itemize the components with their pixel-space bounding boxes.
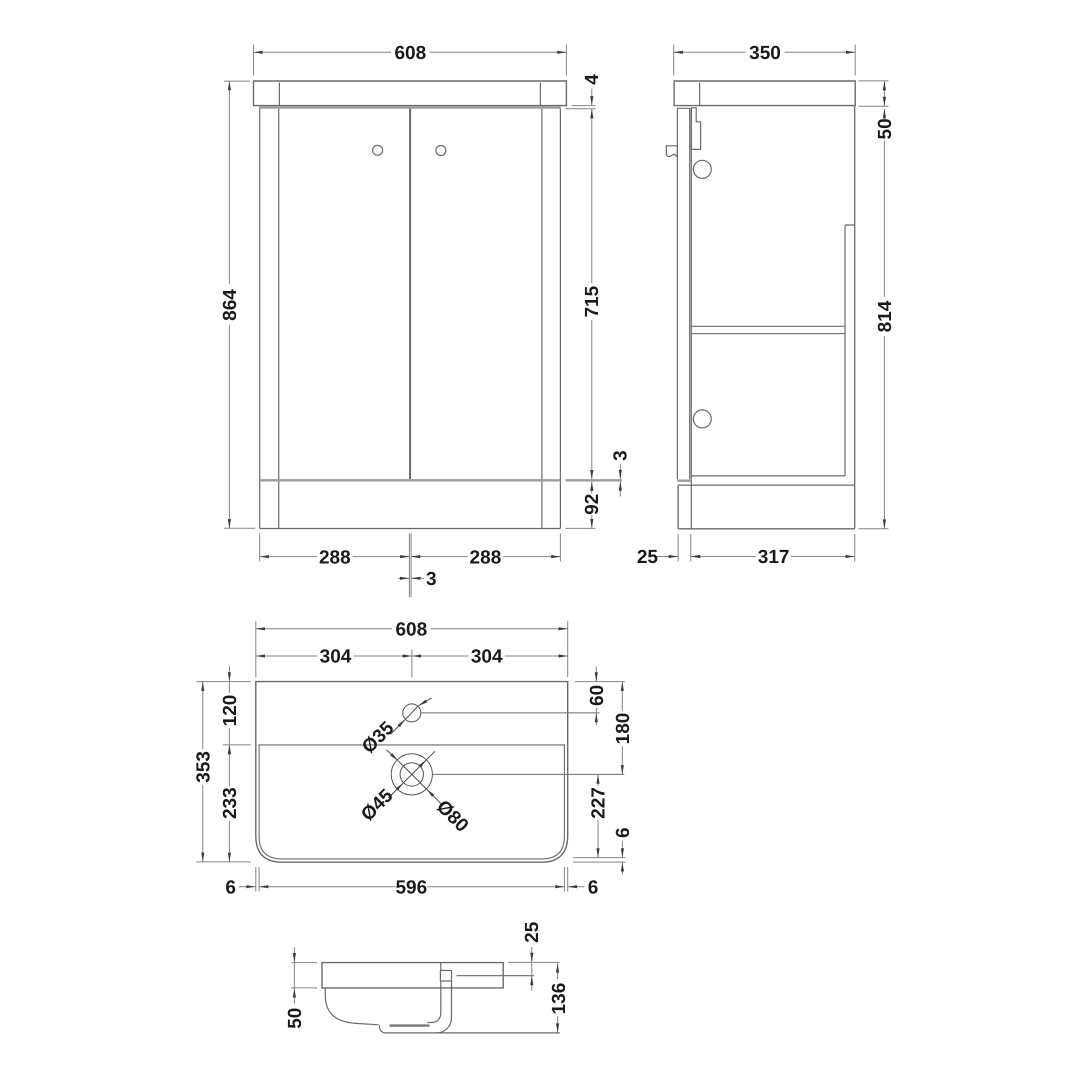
- svg-text:4: 4: [582, 74, 603, 85]
- svg-text:50: 50: [285, 1008, 306, 1029]
- svg-text:288: 288: [319, 547, 351, 568]
- svg-text:715: 715: [582, 285, 603, 317]
- svg-text:350: 350: [749, 43, 781, 64]
- svg-text:227: 227: [589, 787, 610, 819]
- svg-text:608: 608: [395, 619, 427, 640]
- svg-text:120: 120: [220, 695, 241, 727]
- svg-text:92: 92: [582, 494, 603, 515]
- svg-text:304: 304: [471, 647, 503, 668]
- svg-text:50: 50: [875, 118, 896, 139]
- svg-text:136: 136: [549, 983, 570, 1015]
- svg-text:317: 317: [758, 547, 790, 568]
- svg-text:60: 60: [587, 685, 608, 706]
- svg-text:25: 25: [637, 547, 659, 568]
- svg-text:6: 6: [588, 877, 599, 898]
- svg-text:3: 3: [426, 569, 437, 590]
- svg-text:353: 353: [193, 751, 214, 783]
- svg-text:233: 233: [220, 787, 241, 819]
- svg-text:864: 864: [220, 289, 241, 321]
- svg-text:180: 180: [613, 713, 634, 745]
- svg-text:608: 608: [394, 43, 426, 64]
- svg-text:288: 288: [470, 547, 502, 568]
- svg-text:6: 6: [225, 877, 236, 898]
- svg-text:25: 25: [522, 921, 543, 943]
- svg-text:814: 814: [875, 300, 896, 332]
- svg-text:304: 304: [320, 647, 352, 668]
- svg-text:596: 596: [395, 877, 427, 898]
- svg-text:3: 3: [611, 450, 632, 461]
- svg-text:6: 6: [613, 827, 634, 838]
